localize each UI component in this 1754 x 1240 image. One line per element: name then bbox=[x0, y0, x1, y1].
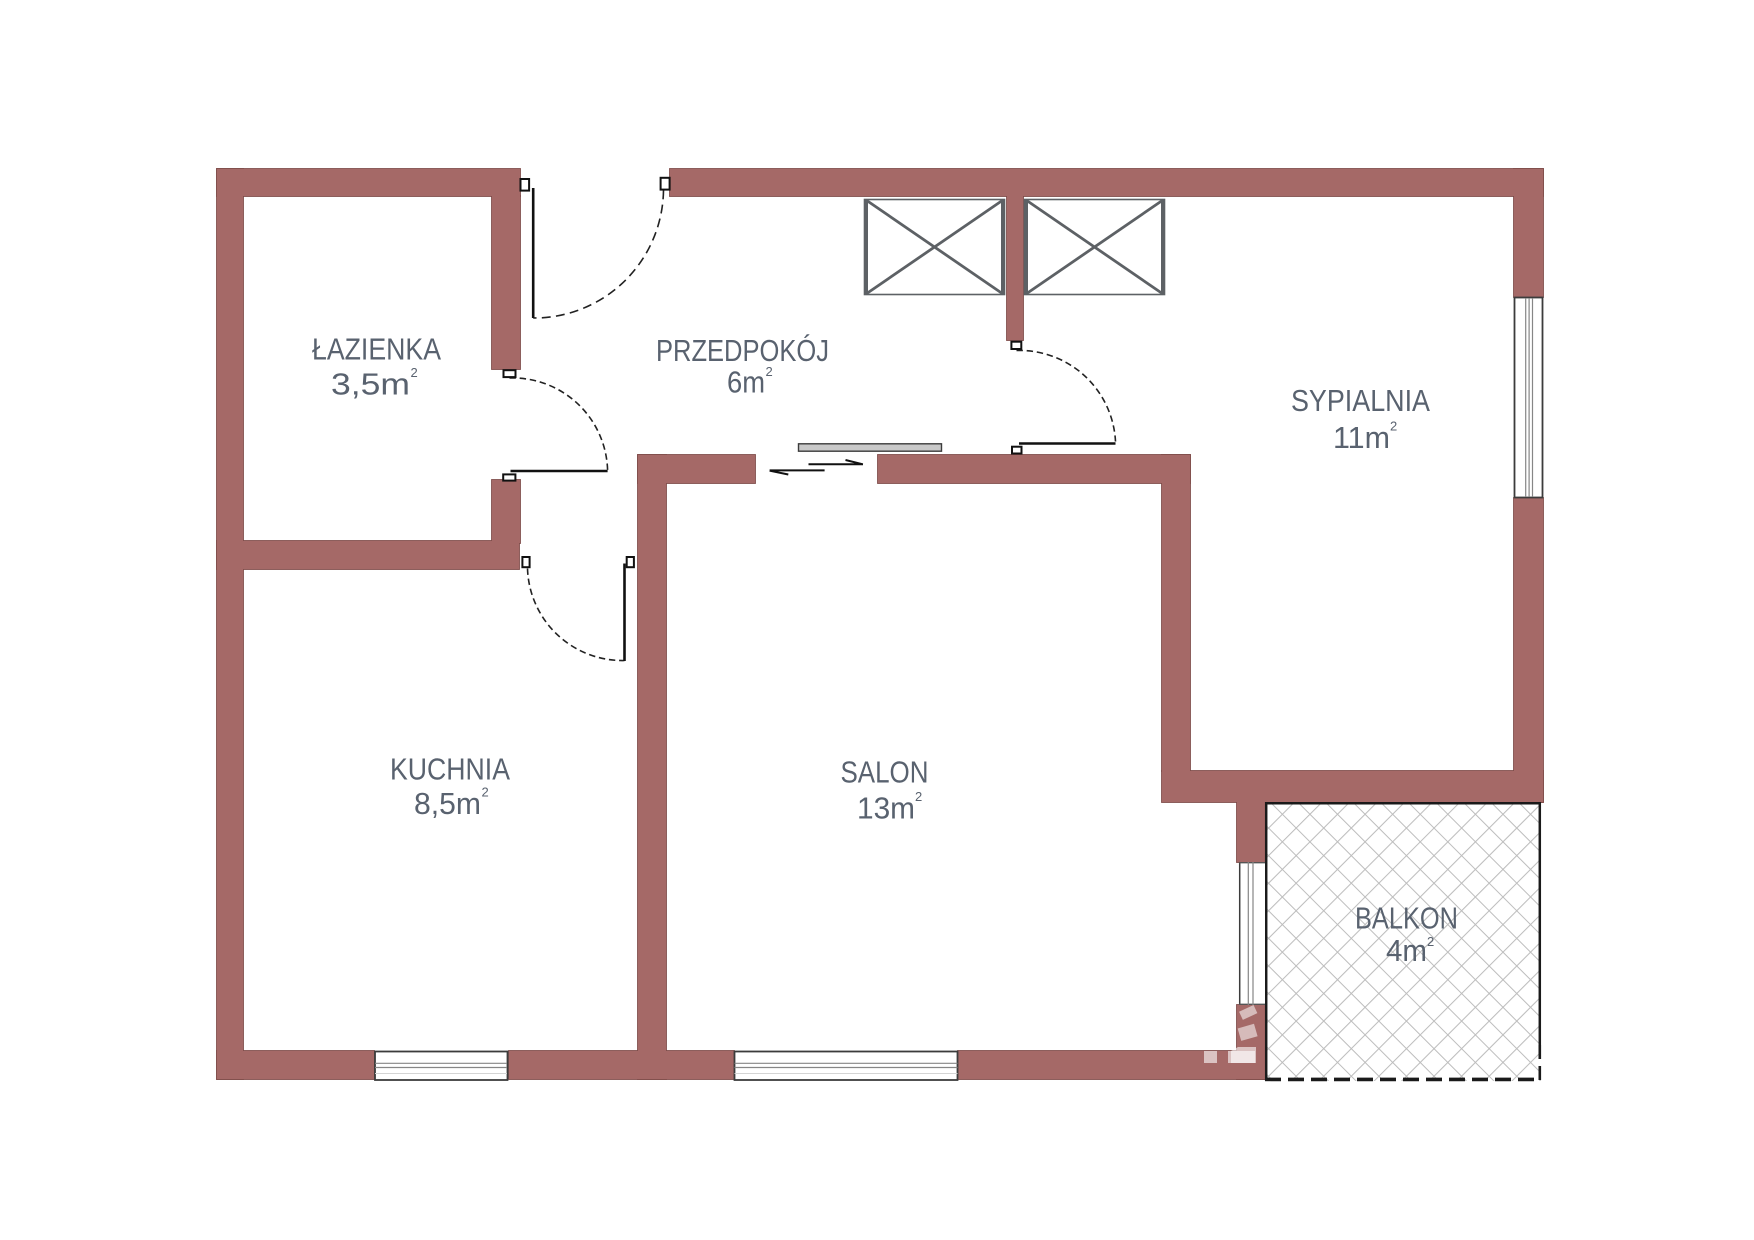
svg-text:3,5m: 3,5m bbox=[331, 368, 410, 402]
svg-text:ŁAZIENKA: ŁAZIENKA bbox=[312, 333, 442, 367]
svg-text:6m: 6m bbox=[727, 366, 765, 400]
svg-text:2: 2 bbox=[482, 785, 489, 800]
svg-text:SALON: SALON bbox=[841, 756, 929, 790]
svg-text:13m: 13m bbox=[857, 792, 915, 826]
svg-text:SYPIALNIA: SYPIALNIA bbox=[1291, 384, 1431, 418]
svg-text:2: 2 bbox=[1390, 419, 1397, 434]
svg-text:2: 2 bbox=[915, 789, 922, 804]
svg-text:8,5m: 8,5m bbox=[414, 787, 481, 821]
svg-text:BALKON: BALKON bbox=[1355, 902, 1458, 936]
svg-text:2: 2 bbox=[411, 365, 418, 380]
svg-text:2: 2 bbox=[766, 364, 773, 379]
svg-text:2: 2 bbox=[1427, 934, 1434, 949]
svg-text:KUCHNIA: KUCHNIA bbox=[390, 753, 511, 787]
svg-text:PRZEDPOKÓJ: PRZEDPOKÓJ bbox=[656, 333, 829, 368]
svg-text:4m: 4m bbox=[1386, 934, 1427, 968]
svg-text:11m: 11m bbox=[1333, 421, 1390, 455]
